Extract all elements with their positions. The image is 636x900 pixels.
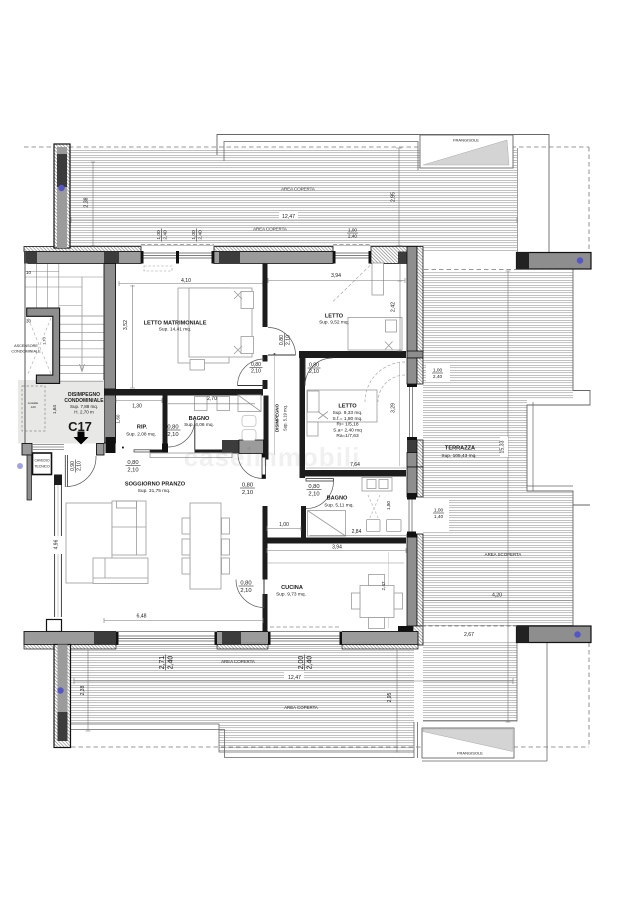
svg-text:FRANGISOLE: FRANGISOLE (457, 751, 483, 756)
svg-text:0,80: 0,80 (308, 484, 319, 490)
svg-text:2,40: 2,40 (168, 656, 175, 670)
svg-text:TERRAZZA: TERRAZZA (445, 446, 475, 452)
svg-text:Sup. 5,11 mq.: Sup. 5,11 mq. (324, 503, 354, 509)
svg-text:CONDOMINIALE: CONDOMINIALE (11, 350, 41, 354)
svg-text:AREA COPERTA: AREA COPERTA (284, 705, 318, 710)
svg-text:H. 2,70 m: H. 2,70 m (74, 410, 94, 415)
svg-text:1,40: 1,40 (434, 514, 444, 520)
svg-text:2,40: 2,40 (162, 230, 168, 240)
svg-text:Sup. 5,19 mq.: Sup. 5,19 mq. (283, 405, 288, 431)
svg-text:SOGGIORNO PRANZO: SOGGIORNO PRANZO (125, 482, 186, 488)
svg-text:1,64: 1,64 (52, 405, 57, 414)
svg-text:LETTO MATRIMONIALE: LETTO MATRIMONIALE (144, 321, 207, 327)
svg-text:10: 10 (26, 270, 32, 275)
svg-text:2,10: 2,10 (240, 588, 251, 594)
svg-text:2,10: 2,10 (242, 490, 253, 496)
svg-text:12,47: 12,47 (282, 214, 295, 220)
svg-text:Sup. 9,52 mq.: Sup. 9,52 mq. (319, 320, 349, 326)
svg-text:0,80: 0,80 (251, 362, 261, 368)
svg-text:2,10: 2,10 (286, 335, 292, 345)
svg-text:ASCENSORE: ASCENSORE (14, 344, 38, 348)
svg-text:S.f.= 1,80 mq.: S.f.= 1,80 mq. (333, 416, 363, 422)
svg-text:2,40: 2,40 (197, 230, 203, 240)
svg-text:Sup. 9,33 mq.: Sup. 9,33 mq. (333, 410, 363, 416)
svg-text:BAGNO: BAGNO (327, 496, 348, 502)
svg-text:6,48: 6,48 (136, 614, 146, 620)
svg-text:4,20: 4,20 (492, 593, 502, 599)
svg-text:Sup. 105,43 mq.: Sup. 105,43 mq. (441, 453, 476, 459)
svg-text:BAGNO: BAGNO (189, 416, 210, 422)
svg-text:.100: .100 (30, 405, 36, 409)
svg-text:1,30: 1,30 (132, 404, 142, 410)
svg-text:4,10: 4,10 (181, 278, 191, 284)
svg-text:1,00: 1,00 (156, 230, 162, 240)
svg-text:2,10: 2,10 (167, 432, 178, 438)
svg-text:2,38: 2,38 (80, 685, 86, 695)
svg-text:1,00: 1,00 (279, 522, 289, 528)
svg-text:2,40: 2,40 (307, 656, 314, 670)
svg-text:2,67: 2,67 (464, 632, 474, 638)
svg-text:Sup. 4,06 mq.: Sup. 4,06 mq. (184, 422, 214, 428)
svg-text:2,10: 2,10 (309, 369, 319, 375)
svg-text:2,42: 2,42 (391, 302, 397, 312)
svg-text:LETTO: LETTO (338, 404, 357, 410)
svg-text:0,80: 0,80 (127, 460, 138, 466)
svg-text:3,94: 3,94 (331, 273, 341, 279)
svg-text:LETTO: LETTO (325, 314, 344, 320)
svg-text:1,70: 1,70 (42, 336, 47, 345)
svg-text:RIP.: RIP. (137, 425, 148, 431)
svg-text:2,38: 2,38 (84, 197, 90, 207)
svg-text:caseimmobili: caseimmobili (184, 442, 361, 472)
svg-text:3,94: 3,94 (332, 545, 342, 551)
svg-text:FRANGISOLE: FRANGISOLE (453, 138, 479, 143)
svg-text:2,40: 2,40 (348, 234, 357, 239)
svg-text:AREA COPERTA: AREA COPERTA (253, 227, 287, 232)
svg-text:AREA SCOPERTA: AREA SCOPERTA (485, 552, 522, 557)
svg-text:3,52: 3,52 (123, 320, 129, 330)
svg-text:1,00: 1,00 (191, 230, 197, 240)
svg-text:2,95: 2,95 (387, 692, 393, 702)
svg-text:DISIMPEGNO: DISIMPEGNO (275, 403, 280, 432)
svg-text:Sup. 14,41 mq.: Sup. 14,41 mq. (159, 327, 192, 333)
svg-text:AREA COPERTA: AREA COPERTA (281, 187, 315, 192)
svg-text:3,29: 3,29 (391, 403, 397, 413)
svg-text:0,80: 0,80 (167, 425, 178, 431)
svg-text:0,80: 0,80 (242, 483, 253, 489)
svg-text:12,47: 12,47 (288, 675, 301, 681)
svg-text:15,33: 15,33 (500, 440, 506, 453)
svg-text:2,00: 2,00 (298, 656, 305, 670)
svg-text:Sup. 2,08 mq.: Sup. 2,08 mq. (126, 432, 156, 438)
svg-text:CUCINA: CUCINA (281, 585, 303, 591)
svg-text:2,70: 2,70 (207, 396, 217, 402)
svg-text:1,00: 1,00 (348, 228, 357, 233)
svg-text:Ri= 1/5,18: Ri= 1/5,18 (336, 422, 358, 428)
svg-text:2,10: 2,10 (308, 491, 319, 497)
svg-text:0,80: 0,80 (309, 363, 319, 369)
svg-text:0,80: 0,80 (240, 581, 251, 587)
svg-text:CAVEDIO: CAVEDIO (34, 459, 49, 463)
svg-text:Sup. 7,88 mq.: Sup. 7,88 mq. (70, 404, 98, 409)
svg-text:0,90: 0,90 (70, 461, 76, 471)
svg-text:Sup. 31,75 mq.: Sup. 31,75 mq. (138, 488, 171, 494)
svg-text:4,96: 4,96 (54, 539, 60, 549)
svg-text:2,10: 2,10 (251, 369, 261, 375)
svg-text:2,10: 2,10 (77, 461, 83, 471)
svg-text:1,60: 1,60 (116, 414, 121, 423)
svg-text:Ra=1/7,63: Ra=1/7,63 (336, 433, 359, 439)
svg-text:2,40: 2,40 (433, 374, 443, 380)
svg-text:2,84: 2,84 (352, 529, 362, 535)
svg-text:AREA COPERTA: AREA COPERTA (221, 659, 255, 664)
svg-text:TECNICO: TECNICO (34, 465, 50, 469)
svg-text:1,00: 1,00 (434, 508, 444, 514)
svg-text:S.a= 2,40 mq: S.a= 2,40 mq (333, 427, 362, 433)
svg-text:Sup. 9,73 mq.: Sup. 9,73 mq. (276, 592, 306, 598)
svg-text:0,80: 0,80 (279, 335, 285, 345)
svg-text:1,80: 1,80 (386, 501, 391, 510)
svg-text:1,00: 1,00 (433, 368, 443, 374)
svg-text:2,47: 2,47 (381, 581, 386, 590)
svg-text:2,95: 2,95 (391, 192, 397, 202)
svg-text:2,71: 2,71 (159, 656, 166, 670)
svg-text:2,10: 2,10 (127, 467, 138, 473)
